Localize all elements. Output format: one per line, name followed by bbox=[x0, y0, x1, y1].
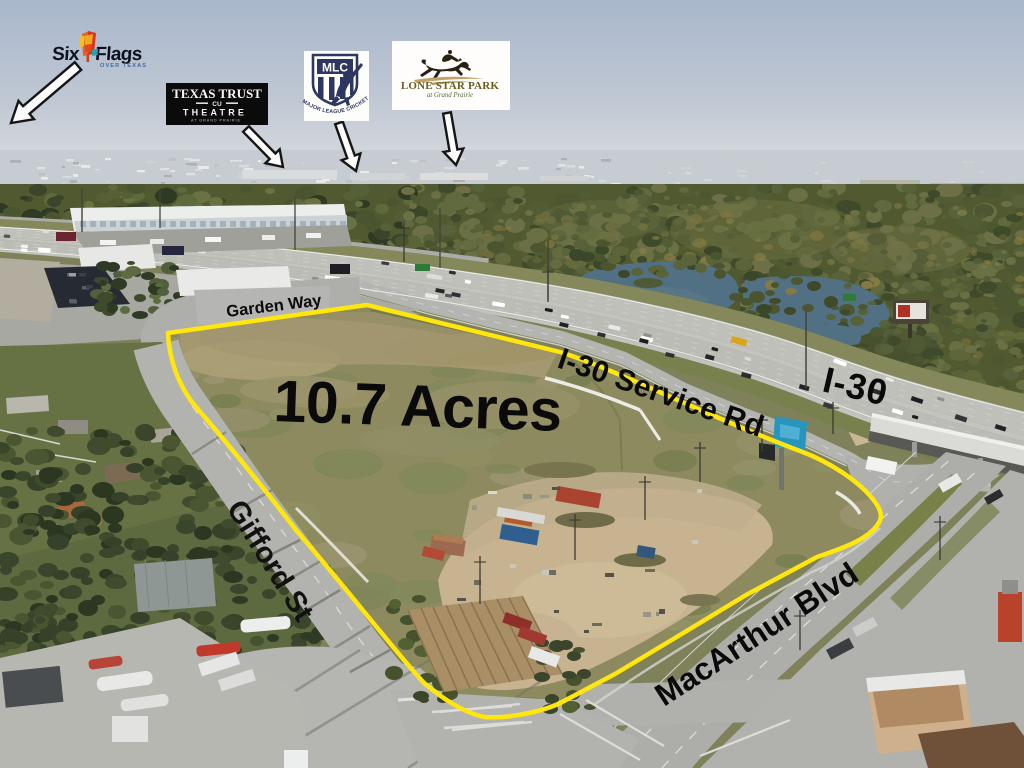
svg-text:LONE STAR PARK: LONE STAR PARK bbox=[401, 80, 500, 92]
svg-text:Flags: Flags bbox=[94, 44, 142, 65]
svg-text:OVER TEXAS: OVER TEXAS bbox=[100, 63, 147, 69]
svg-text:AT GRAND PRAIRIE: AT GRAND PRAIRIE bbox=[191, 119, 241, 123]
svg-text:10.7 Acres: 10.7 Acres bbox=[273, 368, 563, 444]
svg-text:Six: Six bbox=[51, 44, 80, 65]
svg-text:TEXAS TRUST: TEXAS TRUST bbox=[172, 86, 262, 101]
svg-text:at Grand Prairie: at Grand Prairie bbox=[427, 92, 473, 99]
svg-text:THEATRE: THEATRE bbox=[183, 108, 247, 118]
